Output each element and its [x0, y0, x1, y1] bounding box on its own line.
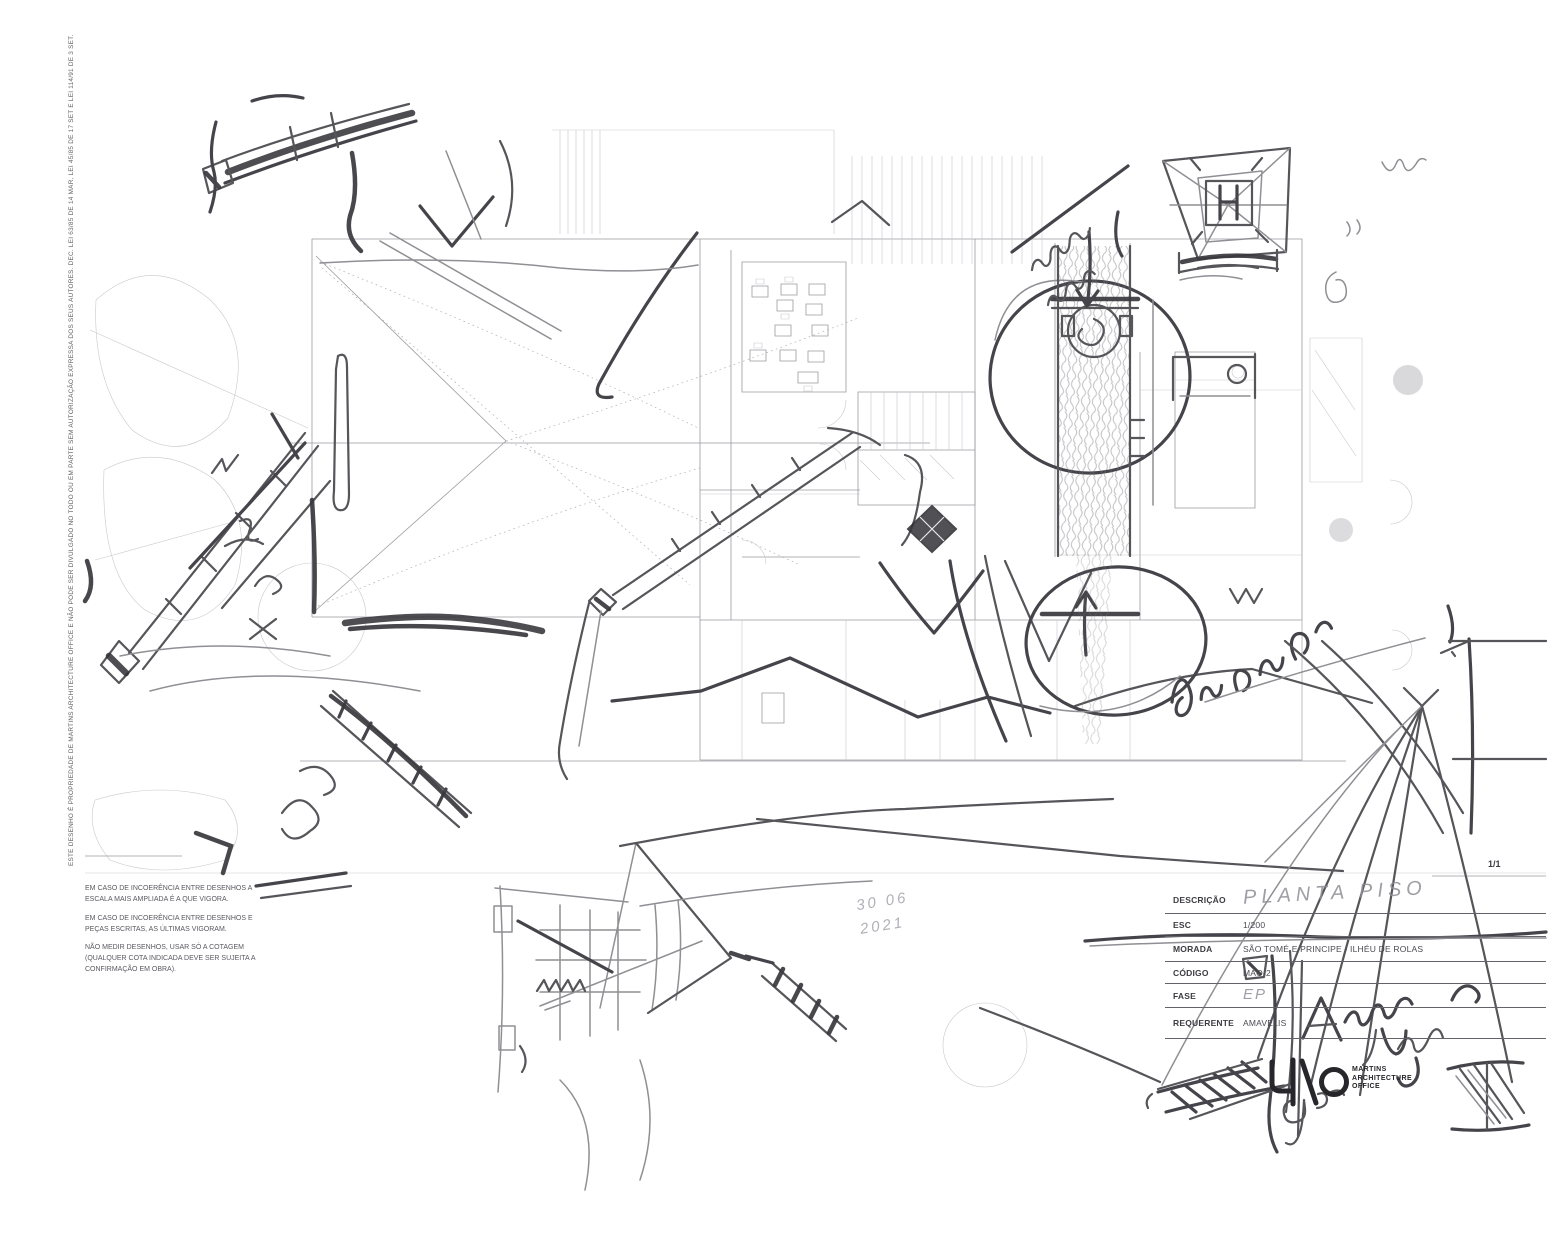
handwritten-date-line2: 2021	[859, 914, 906, 938]
handwritten-date-line1: 30 06	[855, 889, 910, 914]
pencil-fan-skylight	[1163, 148, 1290, 280]
title-label: REQUERENTE	[1165, 1018, 1243, 1028]
disclaimer-2: EM CASO DE INCOERÊNCIA ENTRE DESENHOS E …	[85, 914, 269, 936]
disclaimer-1: EM CASO DE INCOERÊNCIA ENTRE DESENHOS A …	[85, 884, 269, 906]
pencil-bed-overdraw	[1153, 300, 1255, 505]
pencil-bottom-perspective	[494, 843, 731, 1190]
pencil-elevation-roofline	[612, 556, 1372, 741]
sheet-number: 1/1	[1488, 859, 1501, 869]
disclaimer-3: NÃO MEDIR DESENHOS, USAR SÓ A COTAGEM (Q…	[85, 943, 269, 976]
logo-line-2: ARCHITECTURE	[1352, 1075, 1412, 1084]
handwritten-date: 30 06 2021	[855, 886, 914, 942]
disclaimer-notes: EM CASO DE INCOERÊNCIA ENTRE DESENHOS A …	[85, 884, 269, 984]
title-row-fase: FASE	[1165, 984, 1546, 1008]
handwritten-fase: EP	[1243, 986, 1267, 1003]
title-value: MAO-2	[1243, 968, 1271, 978]
pencil-ladder	[731, 953, 846, 1041]
title-label: DESCRIÇÃO	[1165, 895, 1243, 905]
title-label: CÓDIGO	[1165, 968, 1243, 978]
pencil-central-strut	[559, 428, 922, 779]
mao-logo-wordmark: MARTINS ARCHITECTURE OFFICE	[1352, 1066, 1412, 1092]
logo-line-1: MARTINS	[1352, 1066, 1412, 1075]
title-row-requerente: REQUERENTE AMAVELIS	[1165, 1008, 1546, 1039]
pencil-lower-left-truss	[120, 646, 471, 898]
title-label: MORADA	[1165, 944, 1243, 954]
title-block: DESCRIÇÃO ESC 1/200 MORADA SÃO TOMÉ E PR…	[1165, 886, 1546, 1039]
title-label: FASE	[1165, 991, 1243, 1001]
sketch-drawing	[0, 0, 1558, 1236]
cad-elevation	[85, 620, 1546, 876]
title-value: SÃO TOMÉ E PRINCIPE - ILHÉU DE ROLAS	[1243, 944, 1423, 954]
drawing-sheet: ESTE DESENHO É PROPRIEDADE DE MARTINS AR…	[0, 0, 1558, 1236]
title-value: 1/200	[1243, 920, 1265, 930]
title-row-morada: MORADA SÃO TOMÉ E PRINCIPE - ILHÉU DE RO…	[1165, 937, 1546, 962]
mao-logo-mark-icon	[1272, 1060, 1347, 1104]
pencil-upper-left-truss	[203, 96, 889, 398]
logo-line-3: OFFICE	[1352, 1083, 1412, 1092]
copyright-vertical-note: ESTE DESENHO É PROPRIEDADE DE MARTINS AR…	[68, 138, 82, 866]
title-label: ESC	[1165, 920, 1243, 930]
title-value: AMAVELIS	[1243, 1018, 1287, 1028]
title-row-codigo: CÓDIGO MAO-2	[1165, 962, 1546, 984]
title-row-esc: ESC 1/200	[1165, 914, 1546, 937]
pencil-ibeam-right	[1448, 1062, 1529, 1130]
